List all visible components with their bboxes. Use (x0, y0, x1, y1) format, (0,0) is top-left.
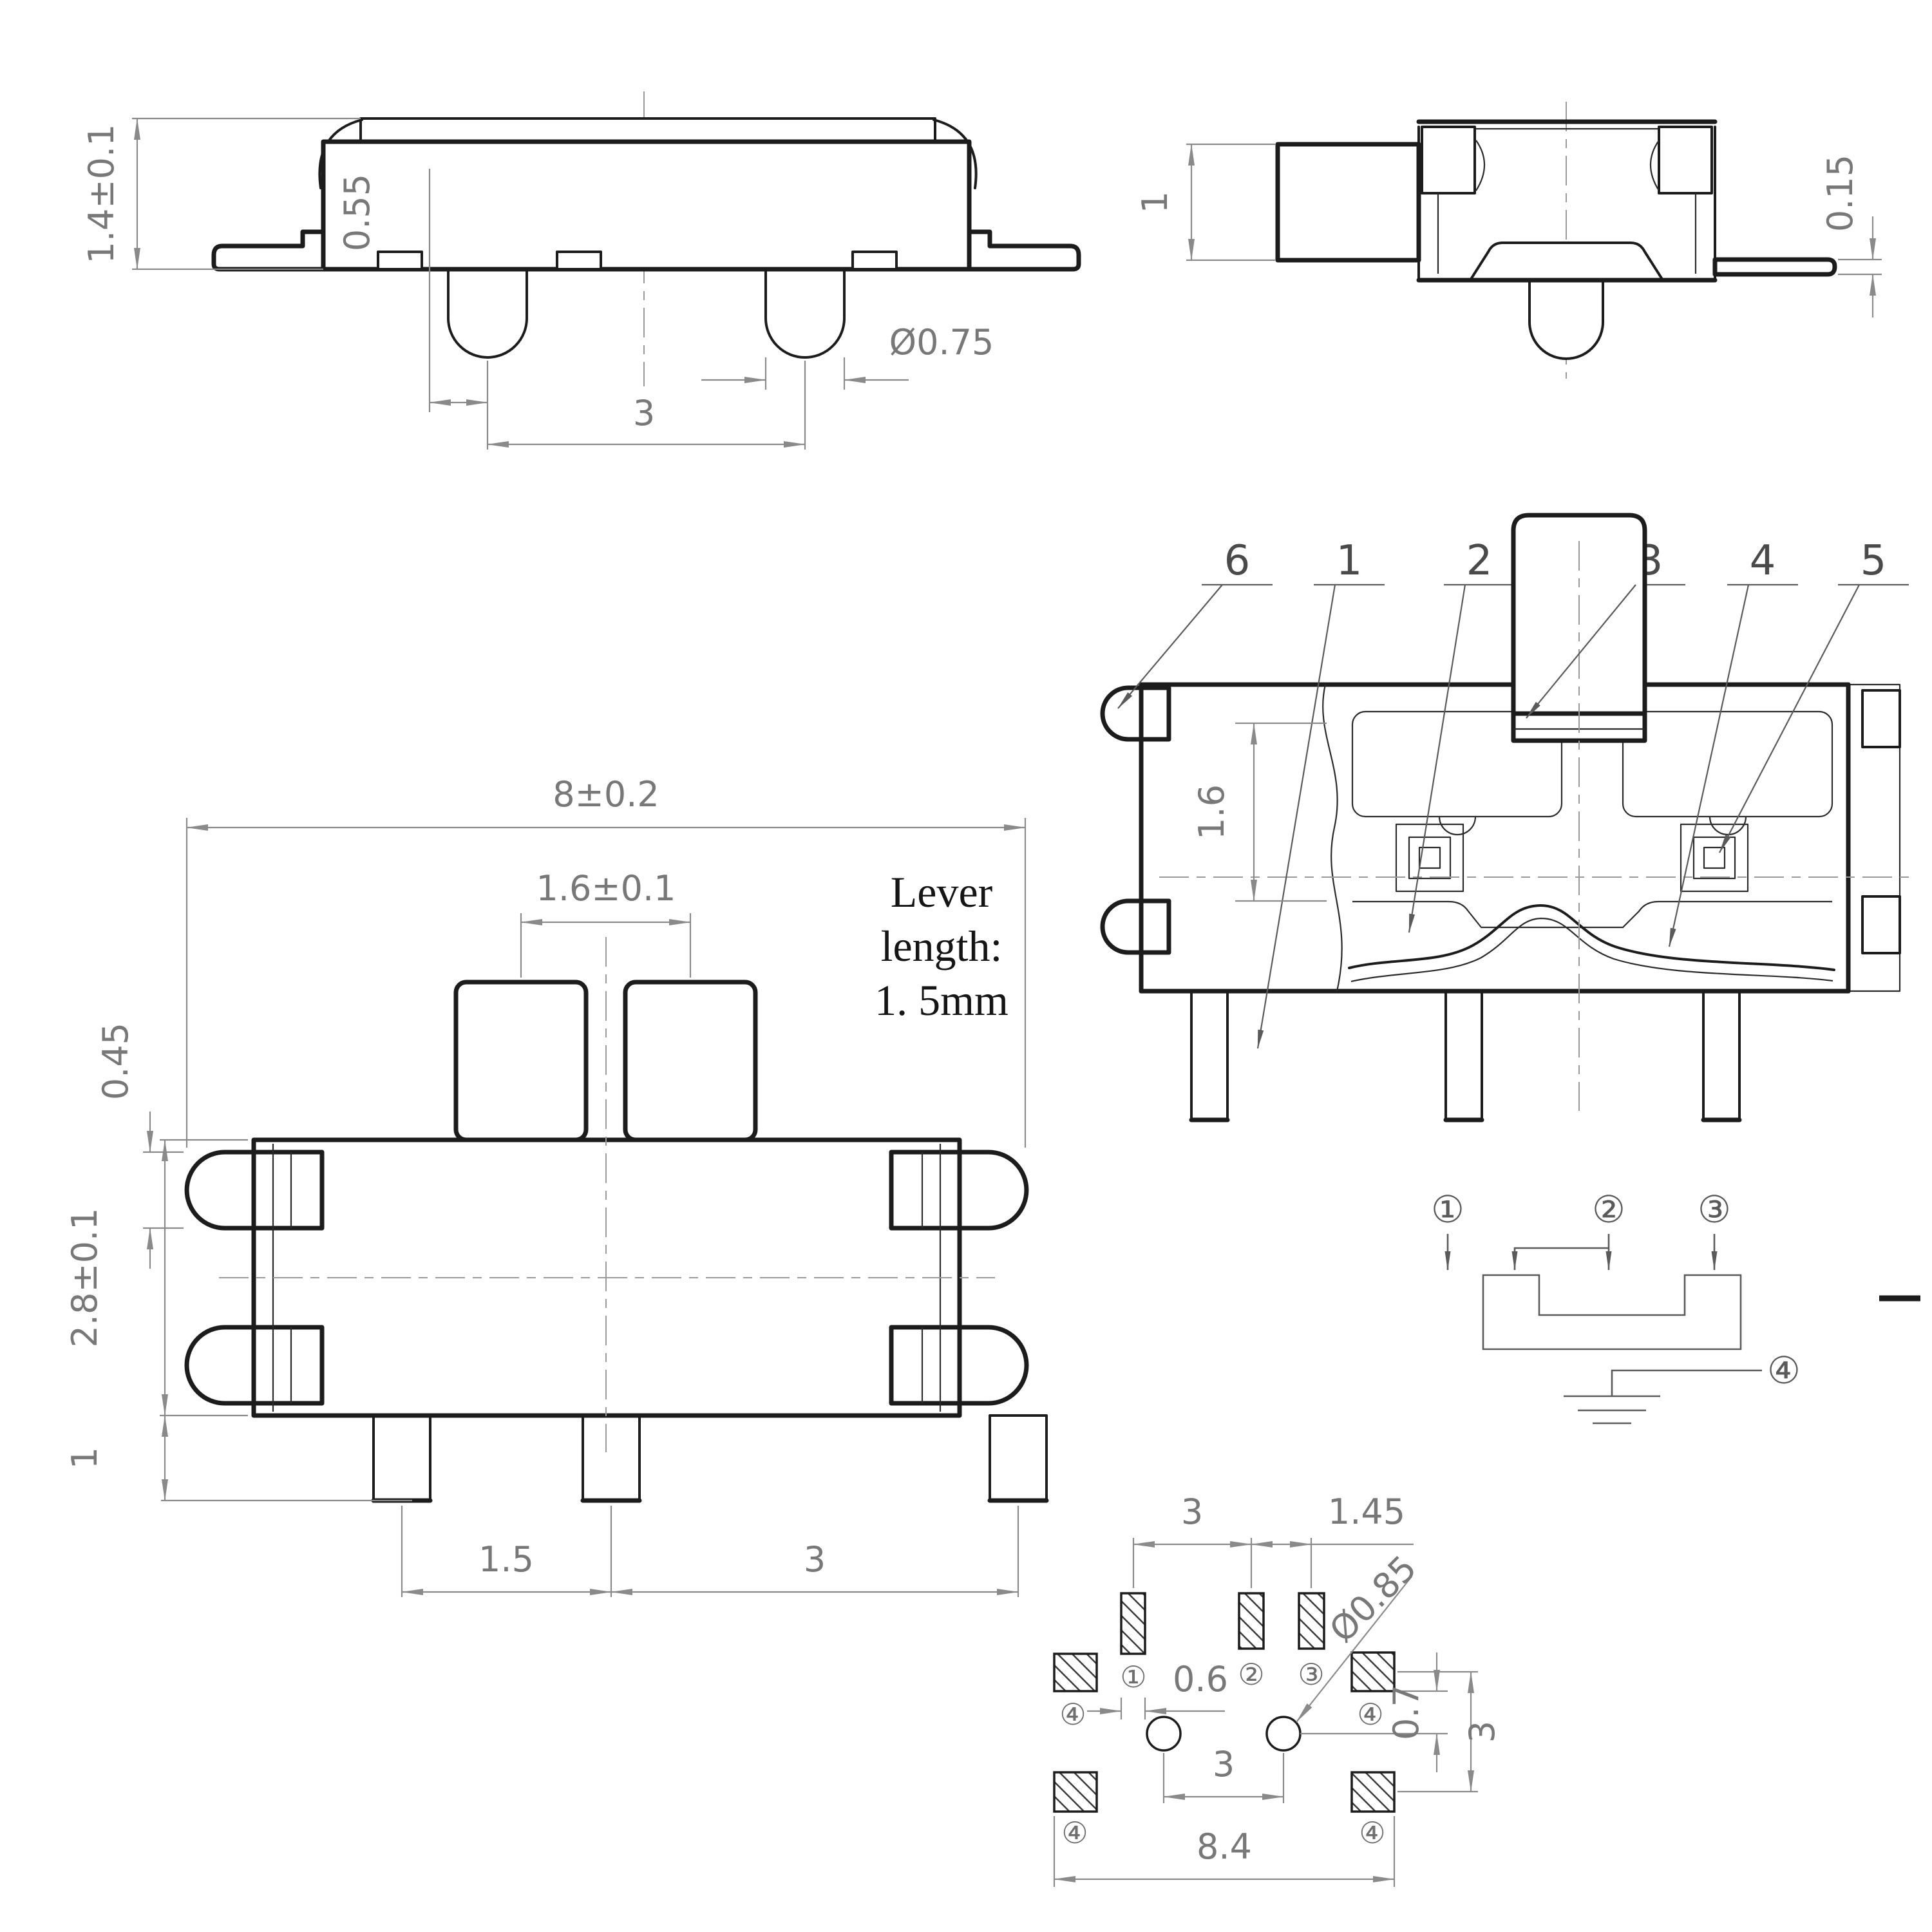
dim-section-contact: 1.6 (1191, 784, 1232, 840)
section-contact-right (1681, 824, 1748, 891)
dim-side-pin-offset: 0.55 (337, 174, 377, 251)
section-leg-2 (1446, 991, 1482, 1120)
footprint-label-1: ① (1120, 1660, 1146, 1694)
terminal-4-label: ④ (1767, 1349, 1801, 1392)
dim-side-height: 1.4±0.1 (81, 124, 122, 263)
dim-end-lever-height: 1 (1135, 191, 1175, 213)
drawing-sheet: 1.4±0.1 0.55 Ø0.75 3 (0, 0, 1932, 1932)
dim-plan-body-height: 2.8±0.1 (64, 1207, 105, 1347)
terminal-1-label: ① (1431, 1188, 1464, 1231)
lever-note-line-3: 1. 5mm (875, 976, 1009, 1025)
side-bump-3 (853, 252, 896, 269)
plan-leg-2 (583, 1416, 639, 1501)
lever-note-line-1: Lever (891, 867, 993, 916)
footprint-pad-4-top-left (1054, 1654, 1097, 1691)
section-clip-top (1862, 690, 1900, 747)
dim-end-foot-thickness: 0.15 (1820, 155, 1861, 232)
footprint-label-4c: ④ (1061, 1815, 1088, 1850)
dim-fp-pad-width: 0.6 (1173, 1659, 1228, 1700)
part-label-2: 2 (1466, 537, 1493, 585)
dim-plan-width: 8±0.2 (553, 774, 659, 815)
dim-plan-leg-length: 1 (64, 1447, 105, 1469)
footprint-pad-1 (1121, 1593, 1145, 1654)
part-label-6: 6 (1224, 537, 1251, 585)
end-post-right (1659, 127, 1712, 193)
slide-switch-technical-drawing: 1.4±0.1 0.55 Ø0.75 3 (0, 0, 1932, 1932)
ground-symbol (1564, 1396, 1660, 1423)
end-post-left (1422, 127, 1475, 193)
dim-plan-lug-height: 0.45 (95, 1023, 136, 1100)
footprint-label-4a: ④ (1059, 1697, 1086, 1732)
dim-fp-row-pitch: 3 (1462, 1721, 1502, 1743)
terminal-3-label: ③ (1698, 1188, 1731, 1231)
dim-fp-hole-offset: 0.7 (1386, 1685, 1426, 1740)
end-view: 1 0.15 (1135, 102, 1882, 379)
footprint-label-4b: ④ (1357, 1697, 1383, 1732)
dim-fp-hole-dia: Ø0.85 (1321, 1548, 1425, 1651)
side-flange-right (969, 232, 1079, 269)
lever-note-line-2: length: (881, 922, 1003, 971)
dim-side-pin-pitch: 3 (633, 393, 655, 433)
plan-view: 8±0.2 1.6±0.1 0.45 2.8±0.1 1 1.5 3 Lever… (64, 774, 1046, 1597)
schematic-contact-bracket (1483, 1275, 1741, 1349)
footprint-pad-4-bottom-left (1054, 1772, 1097, 1812)
side-view: 1.4±0.1 0.55 Ø0.75 3 (81, 91, 1079, 450)
side-pin-2 (766, 269, 844, 357)
end-base-bump (1470, 243, 1663, 280)
section-break-line (1323, 685, 1342, 991)
end-foot (1715, 260, 1835, 274)
plan-knob-left (456, 982, 586, 1140)
section-view: 6 1 2 3 4 5 1.6 (1103, 515, 1916, 1120)
end-pin (1529, 280, 1603, 359)
section-lug-top (1103, 688, 1169, 739)
footprint-pad-2 (1239, 1593, 1264, 1649)
schematic: ① ② ③ ④ (1431, 1188, 1920, 1423)
section-clip-bottom (1862, 896, 1900, 953)
plan-leg-3 (990, 1416, 1046, 1501)
footprint: ① ② ③ ④ ④ ④ ④ 3 1.45 Ø0.85 0.6 3 0.7 (1054, 1492, 1502, 1887)
section-leg-3 (1703, 991, 1739, 1120)
part-label-4: 4 (1750, 537, 1776, 585)
footprint-label-3: ③ (1298, 1657, 1324, 1692)
dim-plan-pitch-23: 3 (804, 1539, 826, 1580)
side-body (323, 142, 969, 269)
section-housing-right (1623, 712, 1832, 817)
end-lever (1278, 144, 1419, 260)
dim-side-pin-dia: Ø0.75 (889, 322, 994, 363)
side-pin-1 (448, 269, 527, 357)
dim-fp-pitch-23: 1.45 (1328, 1492, 1405, 1532)
footprint-pad-4-bottom-right (1352, 1772, 1394, 1812)
part-label-5: 5 (1861, 537, 1887, 585)
section-lug-bottom (1103, 901, 1169, 952)
terminal-2-label: ② (1592, 1188, 1625, 1231)
section-leg-1 (1191, 991, 1227, 1120)
dim-fp-overall: 8.4 (1197, 1826, 1252, 1867)
dim-plan-pitch-12: 1.5 (478, 1539, 534, 1580)
dim-fp-pitch-12: 3 (1181, 1492, 1203, 1532)
section-spring (1349, 905, 1834, 970)
dim-plan-knob-pitch: 1.6±0.1 (536, 868, 676, 909)
footprint-pad-3 (1299, 1593, 1324, 1649)
dim-fp-hole-pitch: 3 (1213, 1744, 1235, 1785)
footprint-label-2: ② (1238, 1657, 1264, 1692)
footprint-hole-2 (1267, 1717, 1300, 1750)
terminal-4-wire (1612, 1370, 1762, 1396)
footprint-hole-1 (1147, 1717, 1180, 1750)
side-flange-left (214, 232, 323, 269)
footprint-label-4d: ④ (1359, 1815, 1385, 1850)
part-label-1: 1 (1336, 537, 1363, 585)
side-bump-1 (378, 252, 422, 269)
side-bump-2 (557, 252, 601, 269)
plan-knob-right (625, 982, 755, 1140)
side-lid (361, 118, 935, 142)
plan-leg-1 (374, 1416, 430, 1501)
